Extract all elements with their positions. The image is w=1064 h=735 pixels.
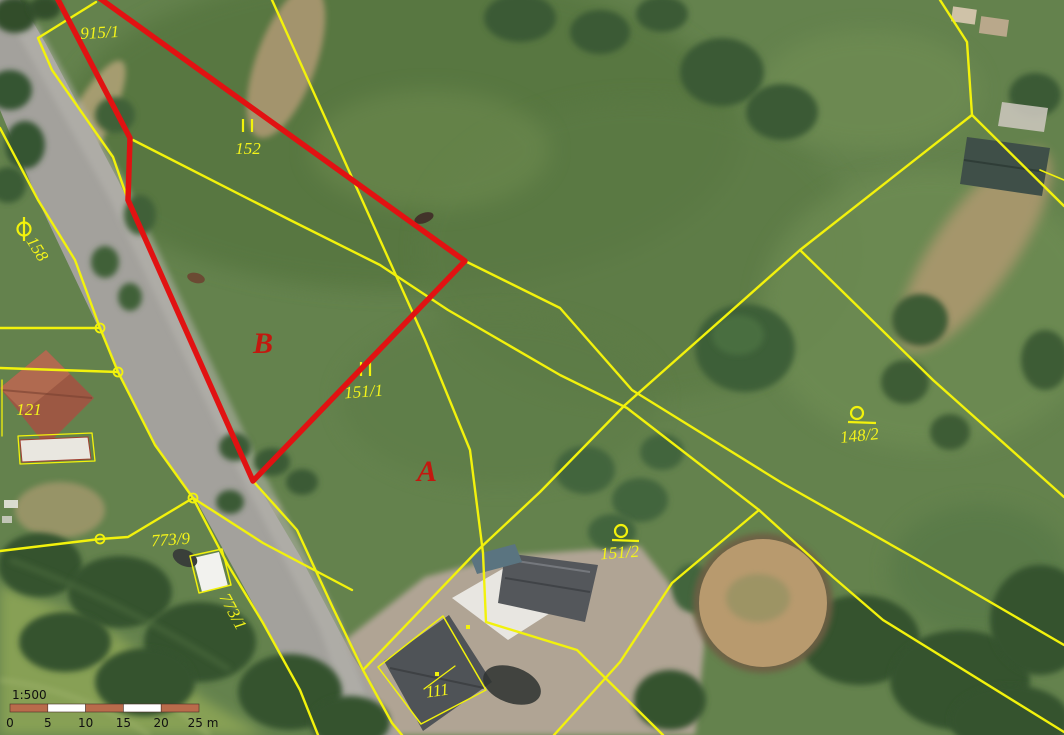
orthophoto-map[interactable]: 915/1 152 158 121 773/9 773/1 111 151/1 …	[0, 0, 1064, 735]
scale-tick-0: 0	[6, 716, 14, 730]
zone-letter-a: A	[415, 455, 437, 488]
scale-ratio: 1:500	[12, 688, 47, 702]
parcel-label-915-1: 915/1	[80, 22, 120, 43]
scale-tick-20: 20	[154, 716, 169, 730]
parcel-label-121: 121	[16, 400, 42, 419]
scale-tick-10: 10	[78, 716, 93, 730]
scale-tick-5: 5	[44, 716, 52, 730]
map-canvas[interactable]: 915/1 152 158 121 773/9 773/1 111 151/1 …	[0, 0, 1064, 735]
parcel-label-773-9: 773/9	[151, 529, 191, 551]
scale-tick-25m: 25 m	[188, 716, 219, 730]
parcel-label-151-1: 151/1	[344, 381, 384, 403]
round-pen	[693, 533, 833, 673]
zone-letter-b: B	[252, 327, 273, 360]
parcel-label-152: 152	[235, 139, 261, 158]
parcel-label-111: 111	[425, 680, 450, 702]
building-point	[435, 672, 439, 676]
building-point	[466, 625, 470, 629]
scale-tick-15: 15	[116, 716, 131, 730]
parcel-label-151-2: 151/2	[600, 542, 640, 564]
